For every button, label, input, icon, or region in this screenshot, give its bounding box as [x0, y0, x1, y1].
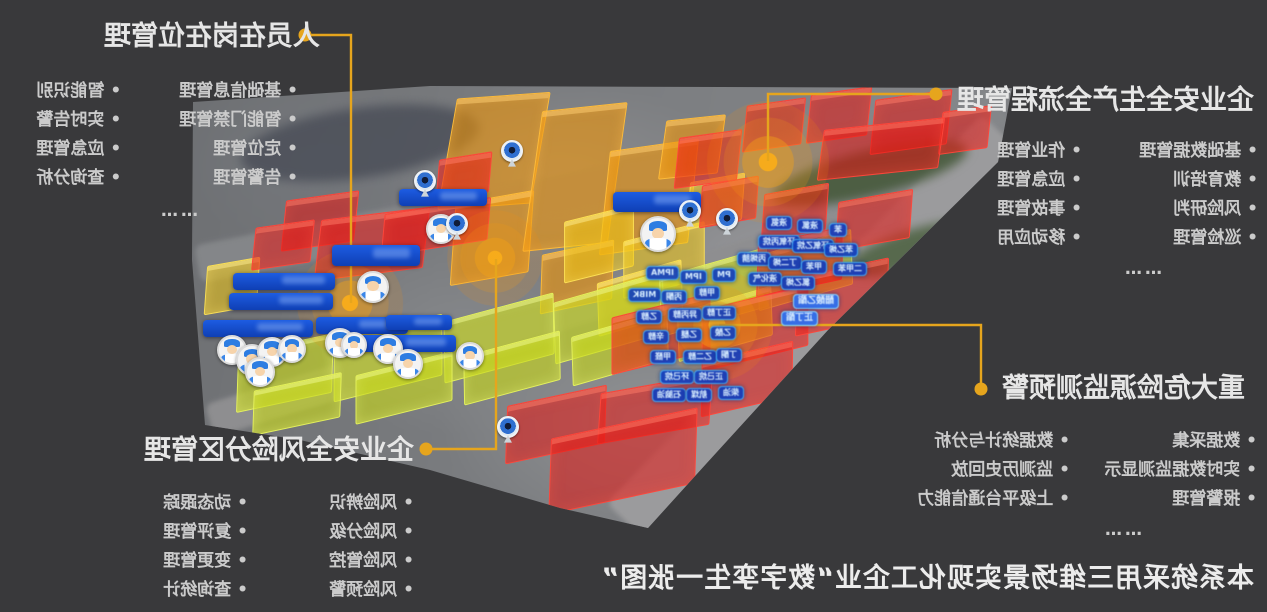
chemical-tag-label: 乙醚 [681, 331, 697, 339]
chemical-tag-label: 正丁酯 [786, 314, 813, 323]
chemical-tag-label: 乙酸 [715, 329, 731, 337]
chemical-tag[interactable]: 二甲苯 [833, 262, 867, 276]
feature-item: 基础数据管理 [1128, 137, 1258, 166]
avatar-face [652, 228, 665, 240]
chemical-tag[interactable]: 甲醇 [694, 286, 720, 300]
chemical-tag-label: 航煤 [691, 391, 707, 399]
chemical-tag-label: 甲醛 [655, 353, 671, 361]
feature-item: 风险辨识 [312, 489, 414, 518]
chemical-tag-label: IPM [685, 273, 702, 281]
chemical-tag[interactable]: 苯 [829, 223, 847, 237]
chemical-tag[interactable]: 醋酸乙酯 [793, 294, 839, 309]
callout-process: 企业安全生产全流程管理 基础数据管理 教育培训 风险研判 巡检管理 作业管理 应… [958, 78, 1260, 279]
chemical-tag[interactable]: 正丁酯 [781, 311, 818, 326]
feature-item: 基础信息管理 [179, 77, 298, 106]
chemical-tag-label: 石脑油 [657, 391, 681, 399]
webcam-icon[interactable] [716, 208, 738, 230]
more-ellipsis: …… [10, 201, 198, 221]
chemical-tag[interactable]: 丁二烯 [768, 256, 802, 270]
feature-item: 变更管理 [163, 547, 248, 576]
chemical-tag[interactable]: 苯乙烯 [824, 243, 858, 257]
chemical-tag[interactable]: 正己烷 [694, 370, 728, 384]
avatar-face [227, 345, 237, 354]
equipment-name-plate[interactable] [386, 315, 452, 330]
feature-item: 风险分级 [312, 518, 414, 547]
feature-item: 事故管理 [997, 195, 1082, 224]
avatar-bodyy [430, 233, 452, 243]
feature-item: 风险管控 [312, 547, 414, 576]
equipment-name-plate[interactable] [233, 273, 335, 290]
equipment-name-plate[interactable] [332, 245, 420, 266]
chemical-tag-label: 正丁醇 [707, 309, 731, 317]
more-ellipsis: …… [855, 520, 1142, 540]
worker-avatar-icon[interactable] [456, 342, 484, 370]
chemical-tag-label: 乙二醇 [688, 353, 712, 361]
avatar-bodyy [645, 238, 672, 251]
feature-item: 风险研判 [1128, 195, 1258, 224]
feature-item: 定位管理 [179, 135, 298, 164]
feature-item: 智能门禁管理 [179, 106, 298, 135]
feature-item: 风险预警 [312, 576, 414, 605]
worker-avatar-icon[interactable] [341, 332, 367, 358]
chemical-tag[interactable]: 异丙醇 [668, 308, 702, 322]
feature-item: 复评管理 [163, 518, 248, 547]
chemical-tag-label: 乙醇 [641, 313, 657, 321]
chemical-tag-label: 二甲苯 [838, 265, 862, 273]
callout-risk: 企业安全风险分区管理 风险辨识 风险分级 风险管控 风险预警 动态跟踪 复评管理… [118, 428, 520, 612]
worker-avatar-icon[interactable] [393, 349, 423, 379]
chemical-tag[interactable]: 丙烯腈 [737, 252, 771, 266]
chemical-tag-label: 液氯 [802, 222, 818, 230]
chemical-tag[interactable]: MIBK [628, 288, 661, 302]
feature-item: 动态跟踪 [163, 489, 248, 518]
chemical-tag[interactable]: 航煤 [686, 388, 712, 402]
feature-item: 应急管理 [36, 135, 121, 164]
avatar-bodyy [460, 359, 480, 369]
feature-item: 实时告警 [36, 106, 121, 135]
feature-item: 数据采集 [1092, 427, 1257, 456]
slide-caption: 本系统采用三维场景实现化工企业“数字孪生一张图” [540, 556, 1254, 595]
equipment-name-plate[interactable] [229, 293, 333, 310]
worker-avatar-icon[interactable] [278, 335, 306, 363]
callout-hazard: 重大危险源监测预警 数据采集 实时数据监测显示 报警管理 数据统计与分析 监测历… [855, 366, 1257, 540]
chemical-tag[interactable]: IPMA [646, 266, 679, 280]
chemical-tag-label: IPMA [651, 269, 674, 277]
feature-item: 应急管理 [997, 166, 1082, 195]
chemical-tag-label: 液化气 [753, 275, 777, 283]
avatar-face [267, 347, 277, 356]
chemical-tag[interactable]: 氯乙烯 [781, 276, 815, 290]
chemical-tag[interactable]: 乙酸 [710, 326, 736, 340]
chemical-tag-label: 氯乙烯 [786, 279, 810, 287]
more-ellipsis: …… [958, 259, 1162, 279]
chemical-tag[interactable]: 辛醇 [643, 330, 669, 344]
chemical-tag[interactable]: 甲醛 [650, 350, 676, 364]
feature-item: 智能识别 [36, 77, 121, 106]
slide-digital-twin-overview: 液氨液氯苯环氧丙烷环氧乙烷苯乙烯丙烯腈丁二烯甲苯二甲苯液化气氯乙烯IPMAIPM… [0, 0, 1267, 612]
chemical-tag[interactable]: 液氯 [797, 219, 823, 233]
chemical-tag[interactable]: 丙酮 [661, 290, 687, 304]
worker-avatar-icon[interactable] [640, 216, 676, 252]
chemical-tag-label: 丙酮 [666, 293, 682, 301]
avatar-face [255, 367, 265, 376]
callout-risk-title: 企业安全风险分区管理 [118, 428, 414, 467]
feature-item: 作业管理 [997, 137, 1082, 166]
chemical-tag[interactable]: 乙醚 [676, 328, 702, 342]
avatar-face [436, 224, 446, 233]
chemical-tag-label: 丁二烯 [773, 259, 797, 267]
chemical-tag-label: 环己烷 [665, 373, 689, 381]
callout-personnel-title: 人员在岗在位管理 [10, 14, 320, 53]
avatar-face [383, 344, 393, 353]
chemical-tag-label: 甲醇 [699, 289, 715, 297]
callout-personnel: 人员在岗在位管理 基础信息管理 智能门禁管理 定位管理 告警管理 智能识别 实时… [10, 14, 410, 221]
chemical-tag-label: 甲苯 [806, 263, 822, 271]
worker-avatar-icon[interactable] [357, 271, 389, 303]
chemical-tag[interactable]: 柴油 [718, 386, 744, 400]
webcam-icon[interactable] [414, 170, 436, 192]
feature-item: 实时数据监测显示 [1092, 456, 1257, 485]
callout-process-title: 企业安全生产全流程管理 [958, 78, 1254, 117]
feature-item: 报警管理 [1092, 485, 1257, 514]
feature-item: 教育培训 [1128, 166, 1258, 195]
chemical-tag[interactable]: 乙醇 [636, 310, 662, 324]
chemical-tag-label: 辛醇 [648, 333, 664, 341]
chemical-tag[interactable]: 正丁醇 [702, 306, 736, 320]
chemical-tag[interactable]: 液氨 [766, 216, 792, 230]
chemical-tag[interactable]: 液化气 [748, 272, 782, 286]
feature-item: 查询分析 [36, 164, 121, 193]
chemical-tag[interactable]: 环己烷 [660, 370, 694, 384]
chemical-tag-label: 正己烷 [699, 373, 723, 381]
worker-avatar-icon[interactable] [245, 357, 275, 387]
chemical-tag[interactable]: 丁酮 [716, 348, 742, 362]
avatar-bodyy [345, 348, 363, 357]
chemical-tag-label: 柴油 [723, 389, 739, 397]
avatar-face [403, 359, 413, 368]
chemical-tag-label: 苯乙烯 [829, 246, 853, 254]
chemical-tag[interactable]: 石脑油 [652, 388, 686, 402]
avatar-bodyy [397, 368, 419, 378]
webcam-icon[interactable] [679, 200, 701, 222]
chemical-tag-label: 醋酸乙酯 [798, 297, 834, 306]
feature-item: 上级平台通信能力 [917, 485, 1070, 514]
chemical-tag[interactable]: 乙二醇 [683, 350, 717, 364]
chemical-tag-label: 苯 [834, 226, 842, 234]
callout-hazard-title: 重大危险源监测预警 [855, 366, 1245, 405]
chemical-tag-label: 液氨 [771, 219, 787, 227]
chemical-tag-label: 环氧丙烷 [763, 238, 795, 246]
chemical-tag[interactable]: 甲苯 [801, 260, 827, 274]
chemical-tag-label: MIBK [633, 291, 656, 299]
equipment-name-plate[interactable] [203, 320, 313, 337]
avatar-face [367, 281, 378, 291]
feature-item: 告警管理 [179, 164, 298, 193]
chemical-tag-label: PM [717, 271, 731, 279]
equipment-name-plate[interactable] [399, 189, 487, 206]
feature-item: 监测历史回放 [917, 456, 1070, 485]
feature-item: 移动应用 [997, 224, 1082, 253]
avatar-bodyy [249, 376, 271, 386]
chemical-tag[interactable]: PM [712, 268, 736, 282]
chemical-tag-label: 异丙醇 [673, 311, 697, 319]
avatar-bodyy [282, 352, 302, 362]
webcam-icon[interactable] [501, 140, 523, 162]
chemical-tag[interactable]: IPM [680, 270, 707, 284]
avatar-bodyy [361, 291, 385, 302]
feature-item: 数据统计与分析 [917, 427, 1070, 456]
webcam-icon[interactable] [446, 213, 468, 235]
chemical-tag-label: 丙烯腈 [742, 255, 766, 263]
feature-item: 巡检管理 [1128, 224, 1258, 253]
feature-item: 查询统计 [163, 576, 248, 605]
chemical-tag-label: 丁酮 [721, 351, 737, 359]
